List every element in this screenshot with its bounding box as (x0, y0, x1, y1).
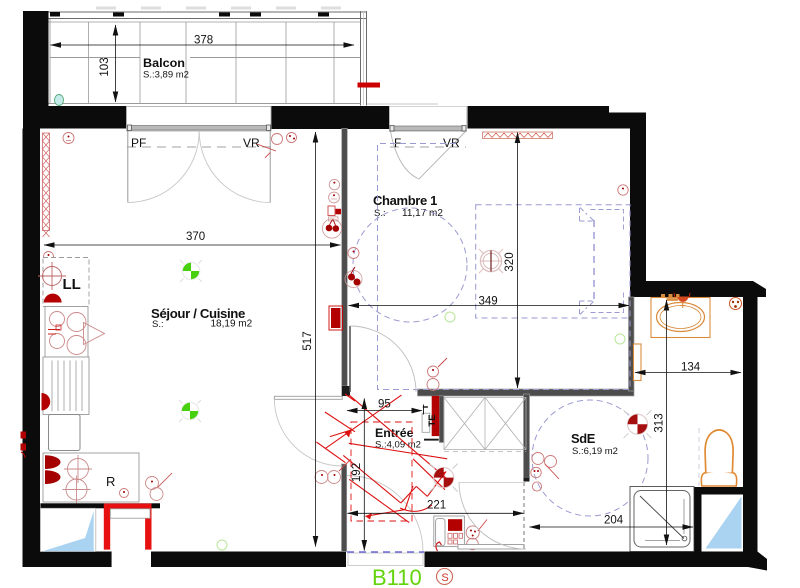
svg-text:349: 349 (479, 296, 498, 308)
svg-text:95: 95 (378, 399, 391, 411)
svg-text:S.:: S.: (374, 208, 386, 219)
svg-text:LL: LL (63, 276, 81, 293)
svg-text:18,19 m2: 18,19 m2 (211, 319, 253, 330)
svg-text:Entrée: Entrée (375, 426, 414, 440)
svg-text:204: 204 (604, 515, 624, 527)
svg-text:R: R (106, 474, 115, 489)
svg-text:221: 221 (427, 500, 446, 512)
svg-text:SdE: SdE (571, 431, 596, 446)
svg-text:192: 192 (351, 463, 363, 482)
svg-text:Balcon: Balcon (143, 56, 185, 70)
svg-text:103: 103 (99, 57, 111, 76)
svg-text:517: 517 (302, 331, 314, 350)
svg-text:TE: TE (427, 414, 438, 426)
svg-text:S.:: S.: (152, 319, 164, 330)
svg-text:378: 378 (194, 35, 213, 47)
svg-text:PF: PF (131, 136, 146, 150)
svg-text:370: 370 (186, 231, 205, 243)
svg-text:B110: B110 (372, 565, 422, 588)
svg-text:320: 320 (504, 252, 516, 271)
svg-text:S.:6,19 m2: S.:6,19 m2 (572, 446, 618, 457)
svg-text:S.:3,89 m2: S.:3,89 m2 (143, 70, 189, 81)
svg-text:VR: VR (243, 136, 260, 150)
svg-text:S: S (441, 572, 448, 584)
svg-text:Chambre 1: Chambre 1 (373, 193, 437, 208)
svg-text:313: 313 (654, 413, 666, 432)
svg-text:134: 134 (681, 362, 701, 374)
